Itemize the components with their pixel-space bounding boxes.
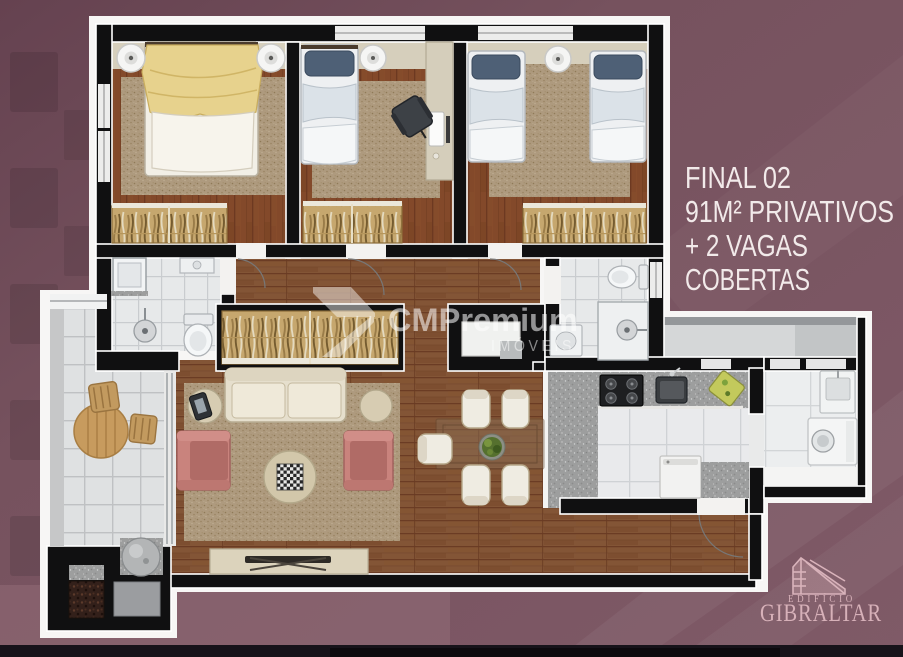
svg-text:91M² PRIVATIVOS: 91M² PRIVATIVOS xyxy=(685,194,894,229)
svg-text:IMÓVEIS: IMÓVEIS xyxy=(491,336,575,355)
svg-text:GIBRALTAR: GIBRALTAR xyxy=(760,600,882,627)
svg-text:CMPremium: CMPremium xyxy=(388,302,578,338)
svg-text:FINAL 02: FINAL 02 xyxy=(685,160,791,195)
svg-text:COBERTAS: COBERTAS xyxy=(685,262,810,297)
svg-text:+ 2 VAGAS: + 2 VAGAS xyxy=(685,228,808,263)
